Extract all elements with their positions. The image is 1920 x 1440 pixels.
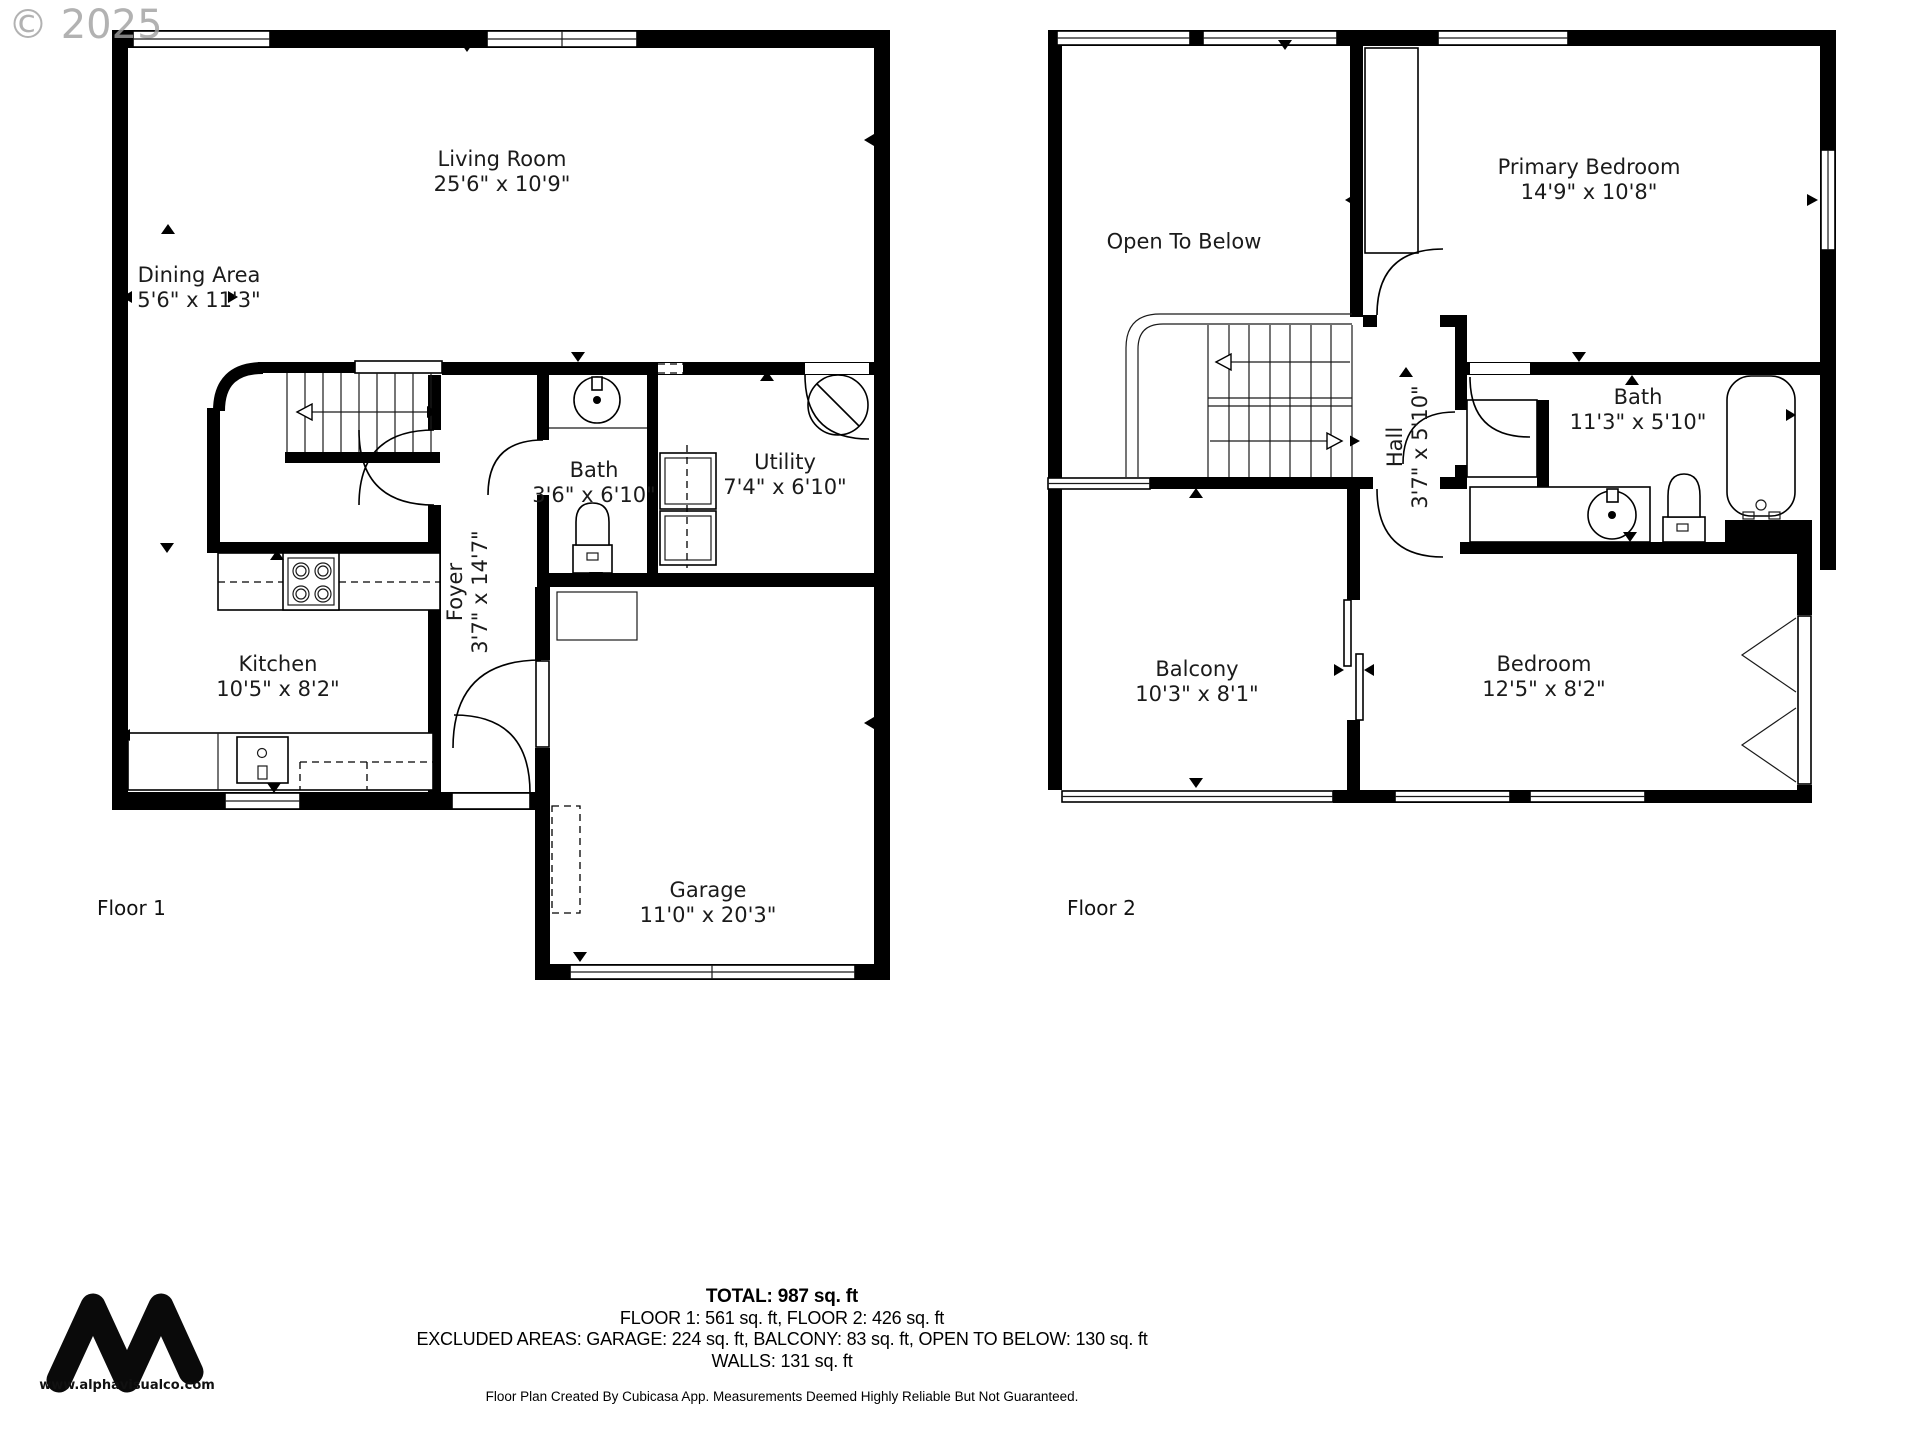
summary-excluded: EXCLUDED AREAS: GARAGE: 224 sq. ft, BALC… (416, 1329, 1147, 1351)
floor2-label: Floor 2 (1067, 896, 1136, 920)
alpha-visual-logo (59, 1306, 191, 1380)
room-label-balcony: Balcony 10'3" x 8'1" (1135, 657, 1258, 707)
floor-plan-page: © 2025 Living Room 25'6" x 10'9" Dining … (0, 0, 1920, 1440)
room-label-primary-bedroom: Primary Bedroom 14'9" x 10'8" (1498, 155, 1681, 205)
room-label-bath2: Bath 11'3" x 5'10" (1570, 385, 1707, 435)
area-summary: TOTAL: 987 sq. ft FLOOR 1: 561 sq. ft, F… (416, 1286, 1147, 1408)
copyright-watermark: © 2025 (8, 2, 163, 48)
room-label-bedroom: Bedroom 12'5" x 8'2" (1482, 652, 1605, 702)
room-label-living-room: Living Room 25'6" x 10'9" (434, 147, 571, 197)
floorplan-drawing (0, 0, 1920, 1440)
room-label-kitchen: Kitchen 10'5" x 8'2" (216, 652, 339, 702)
floor2-stairs (1126, 314, 1360, 477)
summary-floors: FLOOR 1: 561 sq. ft, FLOOR 2: 426 sq. ft (416, 1308, 1147, 1330)
floor1-stairs (287, 373, 438, 452)
room-label-hall: Hall 3'7" x 5'10" (1383, 385, 1433, 508)
room-label-bath1: Bath 3'6" x 6'10" (532, 458, 655, 508)
summary-total: TOTAL: 987 sq. ft (416, 1286, 1147, 1308)
brand-website: www.alphavisualco.com (39, 1378, 215, 1393)
room-label-foyer: Foyer 3'7" x 14'7" (443, 530, 493, 653)
summary-walls: WALLS: 131 sq. ft (416, 1351, 1147, 1373)
floor1-label: Floor 1 (97, 896, 166, 920)
room-label-open-to-below: Open To Below (1107, 230, 1262, 255)
summary-disclaimer: Floor Plan Created By Cubicasa App. Meas… (416, 1386, 1147, 1408)
primary-closet (1365, 48, 1418, 253)
room-label-garage: Garage 11'0" x 20'3" (640, 878, 777, 928)
room-label-dining-area: Dining Area 5'6" x 11'3" (137, 263, 260, 313)
room-label-utility: Utility 7'4" x 6'10" (723, 450, 846, 500)
